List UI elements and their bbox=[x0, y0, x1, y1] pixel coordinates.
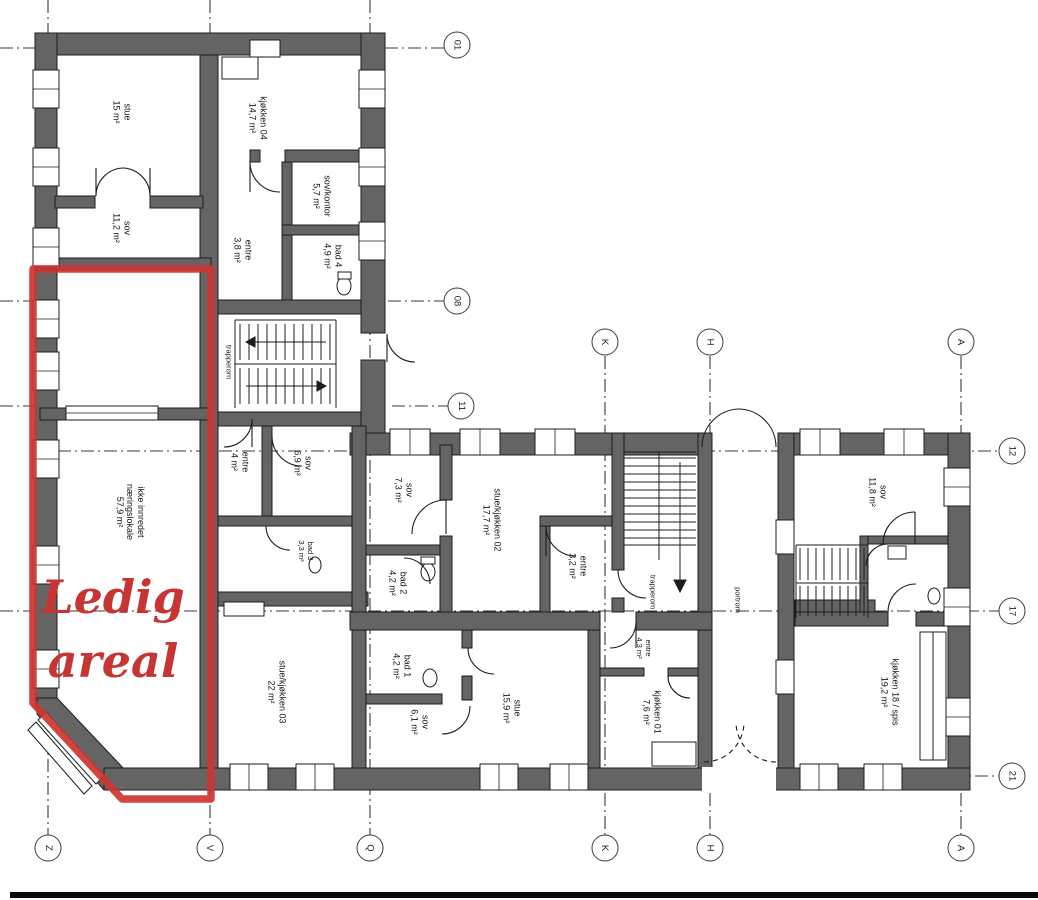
room-label-entre-32: entre 3,2 m² bbox=[567, 553, 588, 579]
room-label-sov-118: sov 11,8 m² bbox=[867, 477, 888, 507]
ledig-areal-text-line1: Ledig bbox=[41, 570, 184, 624]
room-label-bad-2: bad 2 4,2 m² bbox=[387, 570, 408, 596]
grid-bubble-01-label: 01 bbox=[451, 40, 462, 51]
grid-bubble-11: 11 bbox=[448, 393, 475, 420]
grid-bubble-Z-bottom-label: Z bbox=[43, 845, 54, 851]
room-label-stue-kjokken-02: stue/kjøkken 02 17,7 m² bbox=[481, 488, 502, 551]
grid-bubble-12-label: 12 bbox=[1006, 446, 1017, 457]
room-label-entre-mid: entre 4 m² bbox=[229, 452, 250, 473]
grid-bubble-17-label: 17 bbox=[1006, 606, 1017, 617]
room-label-sov-69: sov 6,9 m² bbox=[292, 450, 313, 476]
grid-bubble-A-bottom-label: A bbox=[956, 845, 967, 851]
grid-bubble-01: 01 bbox=[444, 32, 471, 59]
room-label-naeringslokale: ikke innredet næringslokale 57,9 m² bbox=[114, 484, 146, 540]
room-label-stue-kjokken-03: stue/kjøkken 03 22 m² bbox=[266, 660, 287, 723]
grid-bubble-H-top: H bbox=[697, 329, 724, 356]
bottom-rule bbox=[10, 892, 1038, 898]
room-label-stue-159: stue 15,9 m² bbox=[501, 693, 522, 724]
room-label-kjokken-01: kjøkken 01 7,6 m² bbox=[641, 690, 662, 734]
room-label-entre-43: entre 4,3 m² bbox=[634, 637, 652, 658]
grid-bubble-21: 21 bbox=[999, 763, 1026, 790]
room-label-stue-upper: stue 15 m² bbox=[111, 100, 132, 123]
room-label-entre-upper: entre 3,8 m² bbox=[232, 237, 253, 263]
grid-bubble-H-bottom: H bbox=[697, 835, 724, 862]
room-label-sov-73: sov 7,3 m² bbox=[393, 477, 414, 503]
room-label-bad-3: bad 3 3,3 m² bbox=[296, 540, 314, 561]
room-label-sov-upper: sov 11,2 m² bbox=[111, 213, 132, 243]
room-label-kjokken-18: kjøkken 18 / spis 19,2 m² bbox=[879, 658, 900, 725]
grid-bubble-11-label: 11 bbox=[456, 401, 467, 411]
grid-bubble-08: 08 bbox=[444, 288, 471, 315]
room-label-trapperom-mid: trapperom bbox=[648, 575, 657, 609]
grid-bubble-K-bottom: K bbox=[592, 835, 619, 862]
portrom-gate-arcs bbox=[704, 722, 776, 762]
grid-bubble-08-label: 08 bbox=[451, 296, 462, 307]
grid-bubble-17: 17 bbox=[999, 598, 1026, 625]
grid-bubble-Q-bottom: Q bbox=[357, 835, 384, 862]
room-label-bad-1: bad 1 4,2 m² bbox=[391, 653, 412, 679]
grid-bubble-12: 12 bbox=[999, 438, 1026, 465]
grid-bubble-V-bottom: V bbox=[197, 835, 224, 862]
grid-bubble-21-label: 21 bbox=[1006, 771, 1017, 782]
grid-bubble-K-bottom-label: K bbox=[600, 845, 611, 851]
floor-plan-drawing bbox=[0, 0, 1038, 900]
grid-bubble-A-top: A bbox=[948, 329, 975, 356]
grid-bubble-H-bottom-label: H bbox=[705, 845, 716, 852]
room-label-trapperom-upper: trapperom bbox=[224, 345, 233, 379]
stairs bbox=[235, 320, 868, 618]
grid-bubble-Z-bottom: Z bbox=[35, 835, 62, 862]
room-label-bad-4: bad 4 4,9 m² bbox=[322, 243, 343, 269]
floor-plan-page: stue 15 m² sov 11,2 m² kjøkken 04 14,7 m… bbox=[0, 0, 1038, 900]
grid-bubble-Q-bottom-label: Q bbox=[364, 844, 375, 851]
room-label-portrom: portrom bbox=[733, 587, 742, 613]
grid-bubble-K-top-label: K bbox=[600, 339, 611, 345]
grid-bubble-V-bottom-label: V bbox=[205, 845, 216, 851]
grid-bubble-A-bottom: A bbox=[948, 835, 975, 862]
room-label-sov-kontor: sov/kontor 5,7 m² bbox=[311, 175, 332, 217]
room-label-sov-61: sov 6,1 m² bbox=[409, 709, 430, 735]
ledig-areal-text-line2: areal bbox=[48, 634, 179, 688]
room-label-kjokken-04: kjøkken 04 14,7 m² bbox=[247, 96, 268, 140]
grid-bubble-H-top-label: H bbox=[705, 339, 716, 346]
grid-bubble-A-top-label: A bbox=[956, 339, 967, 345]
portrom-gate-opening bbox=[702, 767, 776, 791]
grid-bubble-K-top: K bbox=[592, 329, 619, 356]
